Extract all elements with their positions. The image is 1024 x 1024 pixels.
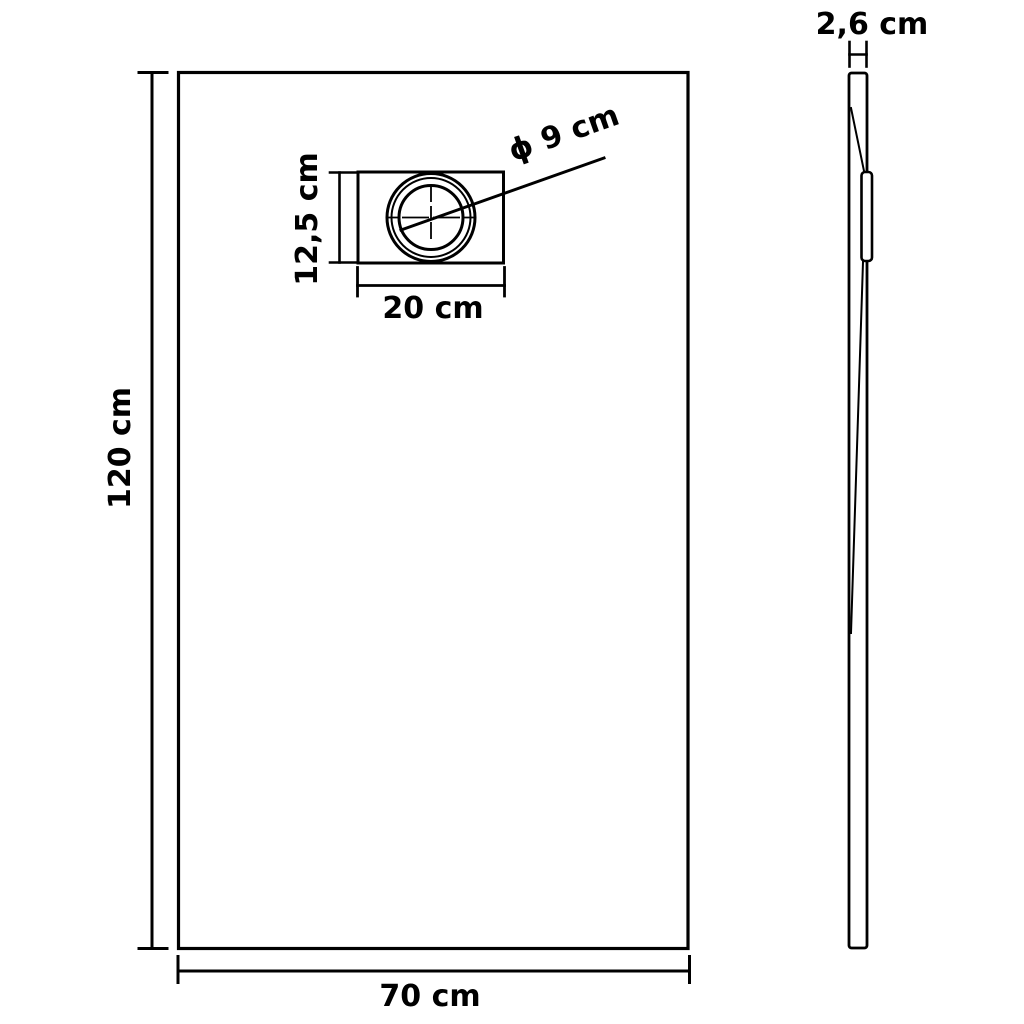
diagram-canvas: 120 cm 70 cm 12,5 cm 20 cm ϕ 9 cm 2,6 cm xyxy=(0,0,1024,1024)
height-dimension-label: 120 cm xyxy=(106,387,136,509)
drain-box-height-label: 12,5 cm xyxy=(293,152,323,286)
drain-box-width-label: 20 cm xyxy=(382,294,483,324)
thickness-dimension-label: 2,6 cm xyxy=(816,10,929,40)
side-view-drain-bump xyxy=(862,172,873,261)
width-dimension-label: 70 cm xyxy=(379,982,480,1012)
